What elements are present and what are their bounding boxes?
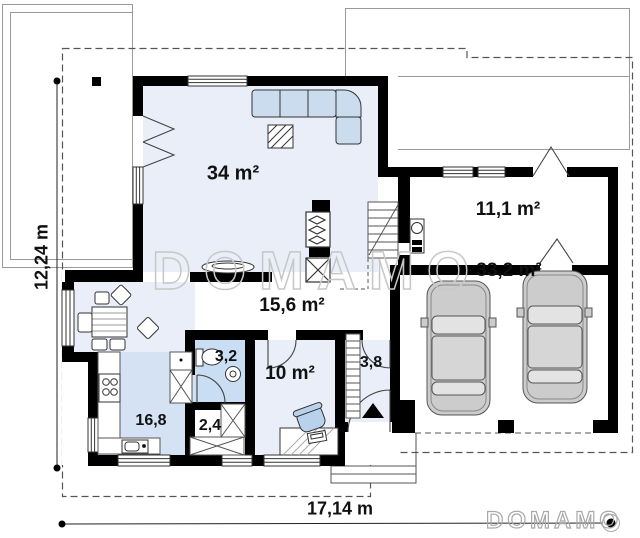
vestibule-wardrobe bbox=[346, 334, 360, 418]
chair bbox=[95, 292, 109, 304]
car-mirror bbox=[421, 318, 428, 327]
room-label-vestibule: 3,8 bbox=[360, 354, 382, 372]
window-wardrobe-south bbox=[222, 455, 252, 466]
washbasin bbox=[226, 367, 241, 382]
car-left bbox=[421, 281, 496, 415]
kitchen-tall-unit bbox=[170, 352, 192, 403]
tv bbox=[202, 261, 254, 273]
car-mirror bbox=[489, 318, 496, 327]
fireplace bbox=[306, 212, 330, 282]
car-right bbox=[517, 271, 592, 403]
dimension-vertical: 12,24 m bbox=[32, 224, 53, 290]
room-label-bathroom: 3,2 bbox=[215, 348, 237, 366]
window-living-west bbox=[133, 167, 143, 204]
room-label-garage: 33,2 m² bbox=[476, 260, 541, 282]
coffee-table bbox=[268, 125, 293, 148]
room-label-living: 34 m² bbox=[207, 163, 259, 186]
room-label-utility: 11,1 m² bbox=[476, 199, 540, 221]
chimney-marker bbox=[92, 77, 101, 86]
window-bedroom-south bbox=[264, 455, 320, 466]
window-dining-west bbox=[62, 290, 74, 346]
room-label-bedroom: 10 m² bbox=[265, 363, 315, 385]
window-kitchen-west bbox=[88, 418, 98, 452]
boiler bbox=[410, 219, 424, 253]
chair bbox=[92, 339, 107, 350]
logo-target-dot bbox=[603, 515, 620, 532]
chair bbox=[78, 313, 92, 332]
terrace-left-outline bbox=[3, 5, 133, 268]
window-utility-north-2 bbox=[478, 167, 505, 177]
floor-plan: DOMAMO DOMAMO 34 m² 15,6 m² 11,1 m² 33,2… bbox=[0, 0, 640, 538]
floor-plan-drawing bbox=[0, 0, 640, 538]
room-label-hall: 15,6 m² bbox=[259, 295, 324, 317]
kitchen-sink bbox=[122, 440, 148, 453]
window-utility-north-1 bbox=[443, 167, 473, 177]
tv-wall bbox=[190, 272, 272, 282]
car-mirror bbox=[585, 308, 592, 317]
stove bbox=[99, 374, 120, 402]
dimension-horizontal: 17,14 m bbox=[307, 499, 373, 520]
window-living-north bbox=[188, 76, 247, 86]
chair bbox=[110, 339, 125, 350]
room-label-kitchen: 16,8 bbox=[135, 412, 166, 430]
room-label-wardrobe: 2,4 bbox=[199, 417, 221, 435]
window-kitchen-south bbox=[118, 455, 170, 466]
car-mirror bbox=[517, 308, 524, 317]
